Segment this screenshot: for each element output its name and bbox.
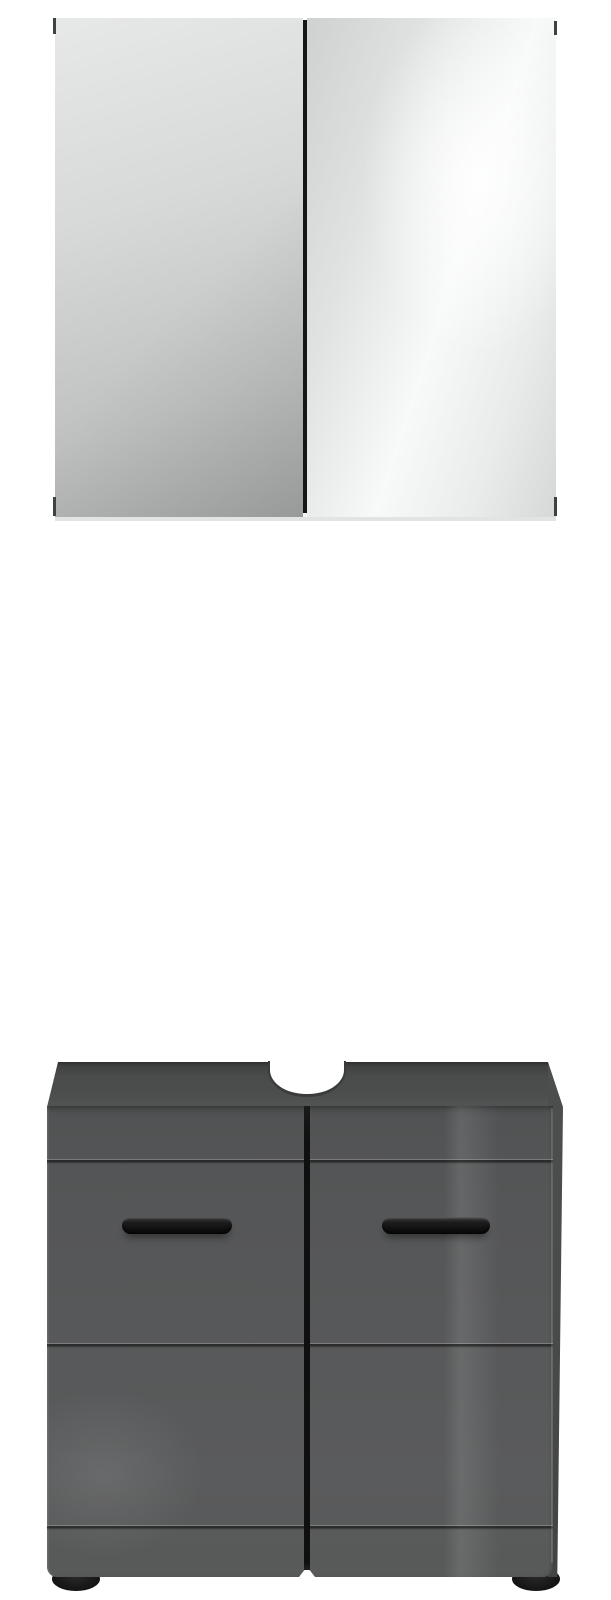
- mirror-cabinet: [55, 18, 556, 521]
- door-groove: [310, 1525, 553, 1531]
- carcass-edge-bottom-right: [554, 497, 557, 516]
- mirror-cabinet-bottom-edge: [55, 517, 556, 521]
- door-groove: [47, 1159, 304, 1165]
- door-handle-left: [122, 1217, 232, 1234]
- carcass-edge-top-left: [53, 18, 56, 34]
- carcass-edge-bottom-left: [53, 497, 56, 516]
- door-groove: [47, 1343, 304, 1349]
- vanity-door-gap: [304, 1106, 310, 1577]
- product-photo: [0, 0, 611, 1600]
- vanity-front: [47, 1106, 553, 1577]
- vanity-door-right-gloss: [310, 1106, 553, 1577]
- mirror-reflection-sheen: [307, 18, 556, 517]
- door-handle-right: [382, 1217, 490, 1234]
- carcass-edge-top-right: [554, 21, 557, 35]
- mirror-reflection-shade: [55, 18, 303, 517]
- vanity-door-right: [310, 1106, 553, 1577]
- mirror-door-gap: [303, 20, 307, 513]
- vanity-door-left: [47, 1106, 304, 1577]
- mirror-door-left: [55, 18, 303, 517]
- vanity-corner-highlight: [551, 1108, 553, 1563]
- door-groove: [47, 1525, 304, 1531]
- door-groove: [310, 1159, 553, 1165]
- door-groove: [310, 1343, 553, 1349]
- vanity-door-left-gloss: [47, 1106, 304, 1577]
- mirror-door-right: [307, 18, 556, 517]
